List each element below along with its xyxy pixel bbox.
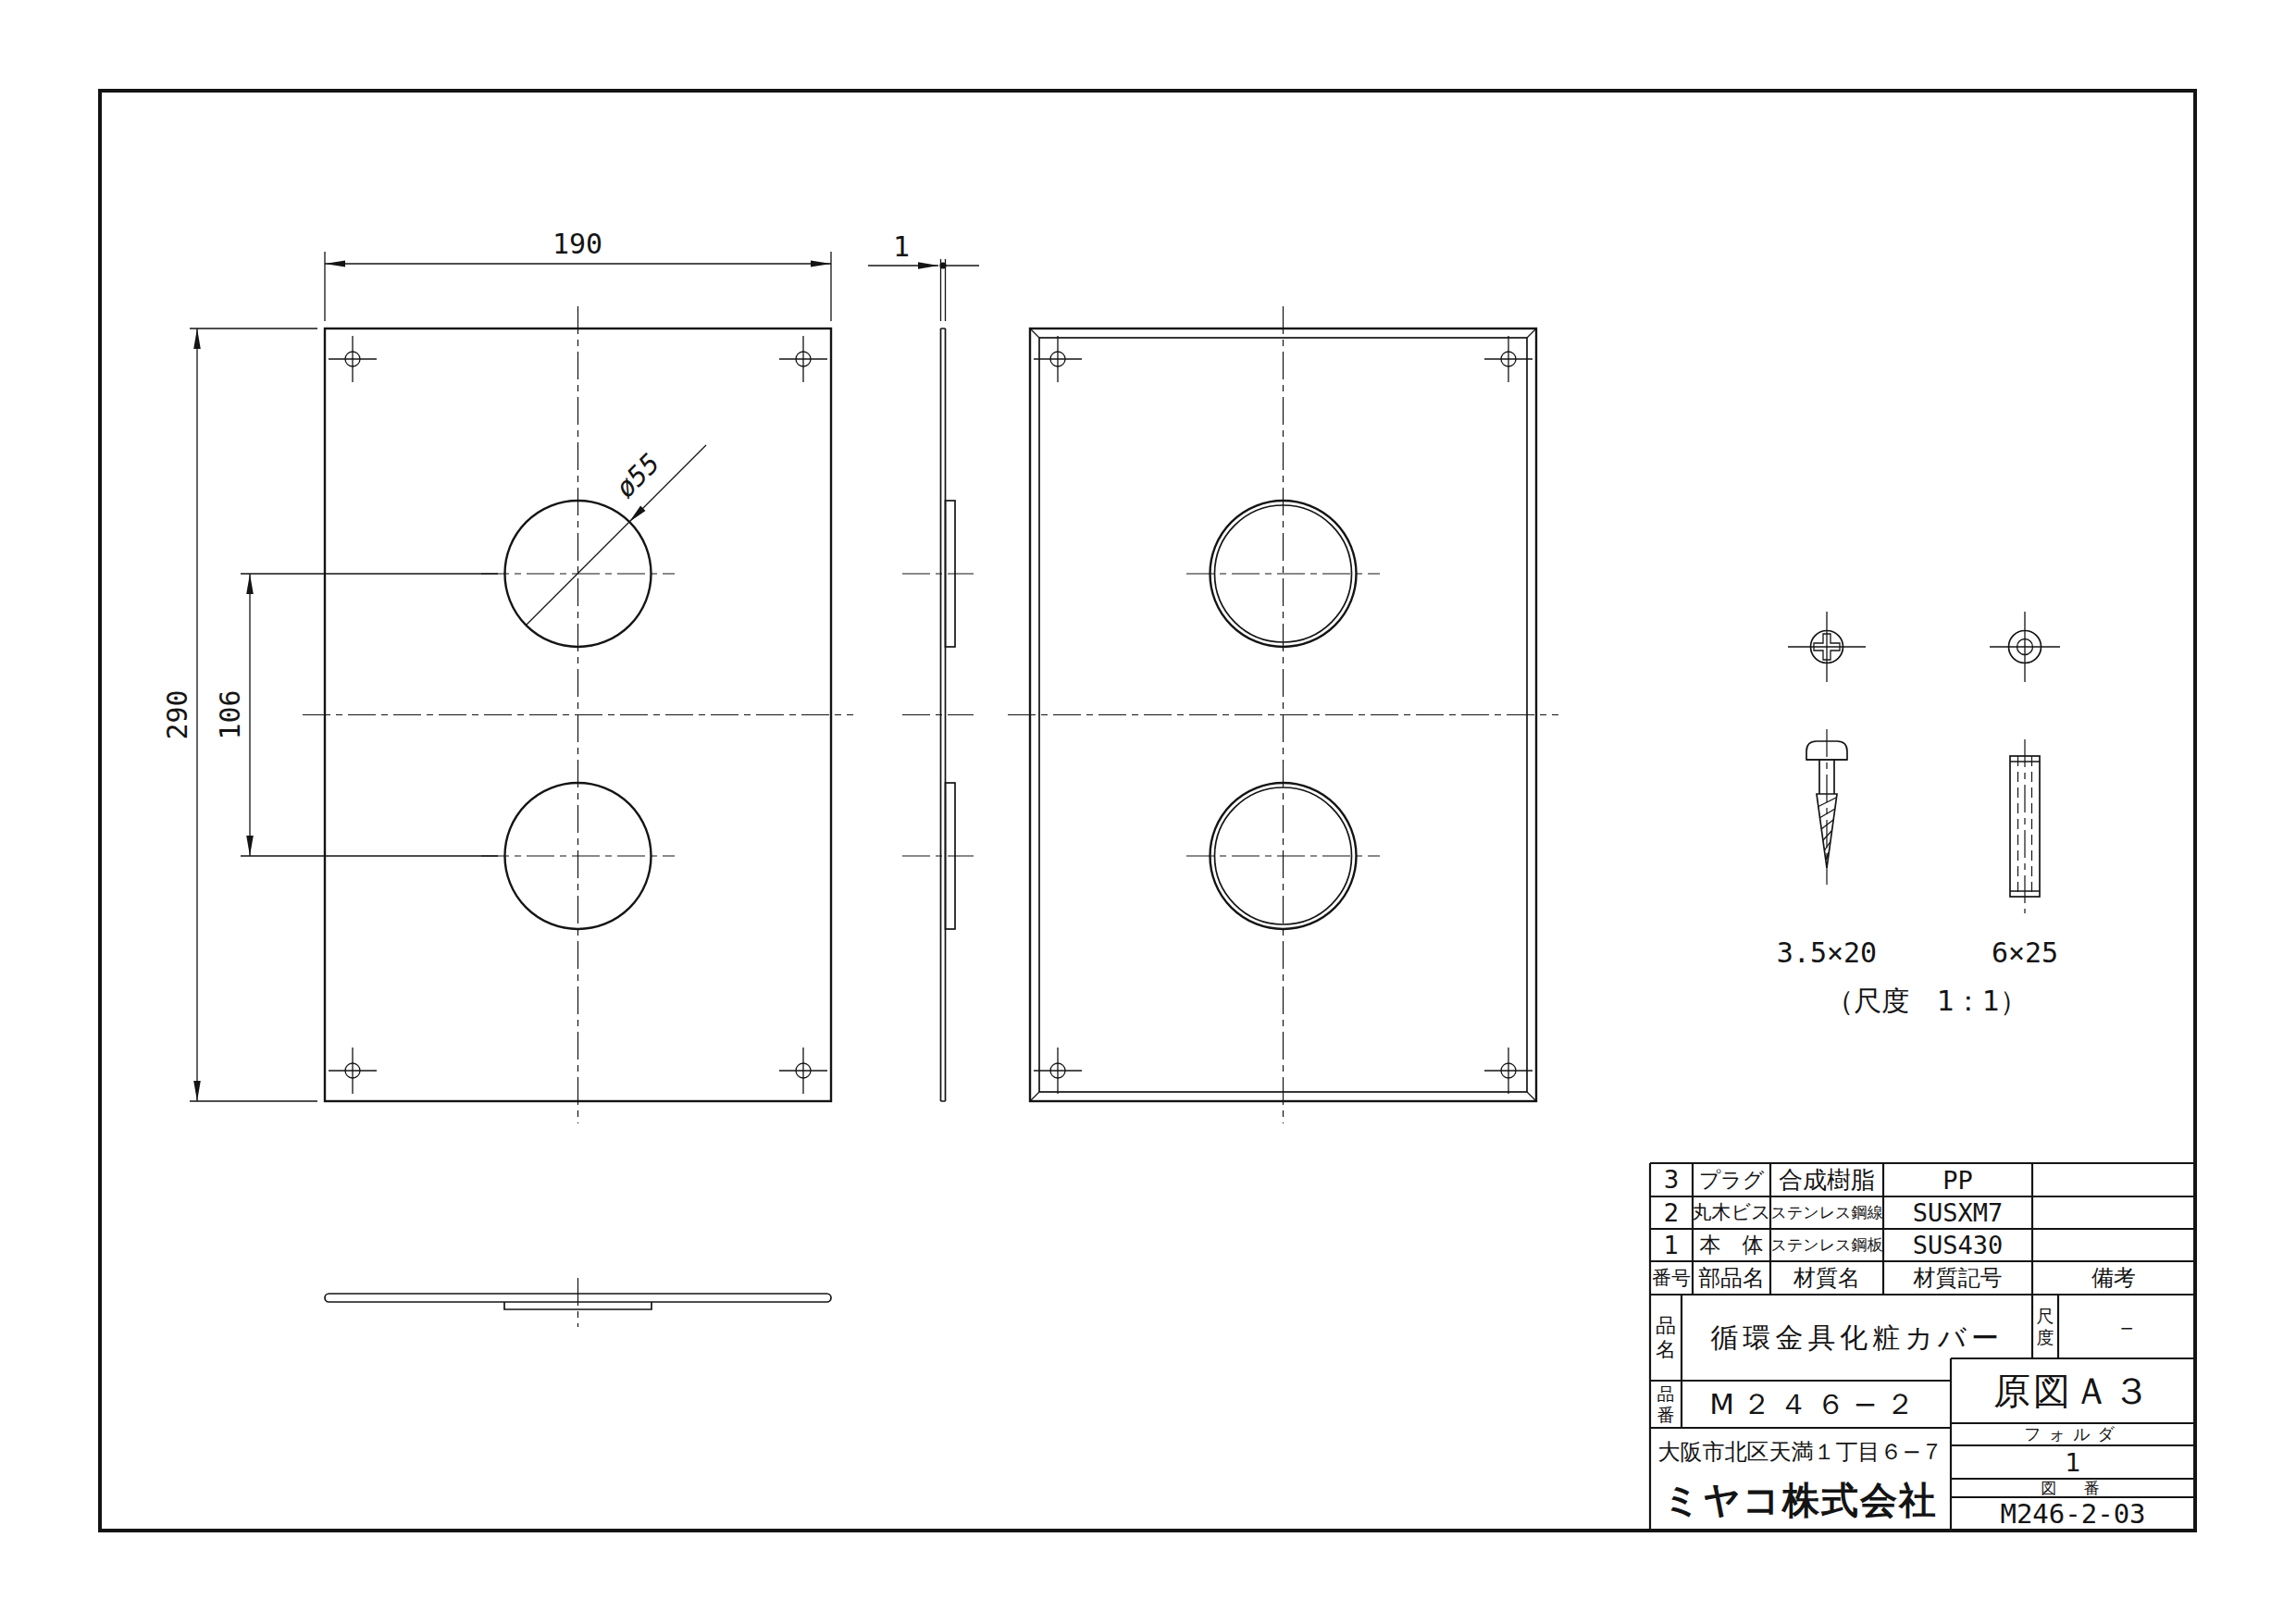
parts-row1-material: ステンレス鋼板: [1770, 1229, 1883, 1261]
drawing-sheet: ø55 190 290 106 1: [0, 0, 2296, 1624]
dim-thickness-label: 1: [893, 230, 910, 263]
company-name: ミヤコ株式会社: [1650, 1473, 1951, 1527]
parts-row1-no: 1: [1650, 1229, 1693, 1261]
dim-hole-pitch-label: 106: [214, 689, 246, 739]
side-centerlines: [902, 574, 974, 856]
drawing-no-label: 図 番: [1951, 1479, 2195, 1497]
parts-row1-code: SUS430: [1883, 1229, 2032, 1261]
screw-top-crosshair: [1788, 612, 1866, 682]
parts-header-no: 番号: [1650, 1261, 1693, 1295]
wood-screw-detail: 3.5×20: [1777, 612, 1877, 969]
parts-row2-name: 丸木ビス: [1693, 1196, 1770, 1229]
part-no-label: 品番: [1652, 1381, 1680, 1428]
parts-header-name: 部品名: [1693, 1261, 1770, 1295]
hole-diameter-label: ø55: [609, 447, 665, 503]
parts-header-material: 材質名: [1770, 1261, 1883, 1295]
plug-end-lines: [2010, 762, 2040, 891]
drawing-no-value: M246-2-03: [1951, 1497, 2195, 1531]
side-view: [902, 329, 974, 1101]
product-name-label: 品名: [1652, 1295, 1680, 1381]
plug-detail: 6×25: [1990, 612, 2060, 969]
dim-width-label: 190: [552, 228, 602, 260]
parts-row2-no: 2: [1650, 1196, 1693, 1229]
dim-thickness: 1: [868, 230, 979, 321]
dim-height-label: 290: [161, 689, 193, 739]
part-no-value: M２４６−２: [1682, 1381, 1951, 1428]
folder-value: 1: [1951, 1445, 2195, 1479]
diameter-leader-line: [526, 445, 706, 626]
parts-header-code: 材質記号: [1883, 1261, 2032, 1295]
scale-label: 尺度: [2033, 1295, 2057, 1358]
front-view: ø55: [303, 306, 853, 1123]
parts-row3-no: 3: [1650, 1163, 1693, 1196]
back-view: [1008, 306, 1558, 1123]
plug-top-crosshair: [1990, 612, 2060, 682]
folder-label: フォルダ: [1951, 1423, 2195, 1445]
company-address: 大阪市北区天満１丁目６−７: [1650, 1432, 1951, 1471]
parts-row2-material: ステンレス鋼線: [1770, 1196, 1883, 1229]
parts-row3-material: 合成樹脂: [1770, 1163, 1883, 1196]
scale-value: －: [2058, 1295, 2195, 1358]
original-size: 原図Ａ３: [1951, 1358, 2195, 1423]
parts-row3-name: プラグ: [1693, 1163, 1770, 1196]
scale-note: （尺度 1：1）: [1826, 985, 2028, 1017]
screw-size-label: 3.5×20: [1777, 936, 1877, 969]
parts-row3-code: PP: [1883, 1163, 2032, 1196]
parts-header-remarks: 備考: [2032, 1261, 2195, 1295]
bottom-view: [325, 1278, 831, 1327]
parts-row1-name: 本 体: [1693, 1229, 1770, 1261]
parts-row2-code: SUSXM7: [1883, 1196, 2032, 1229]
plug-size-label: 6×25: [1992, 936, 2058, 969]
